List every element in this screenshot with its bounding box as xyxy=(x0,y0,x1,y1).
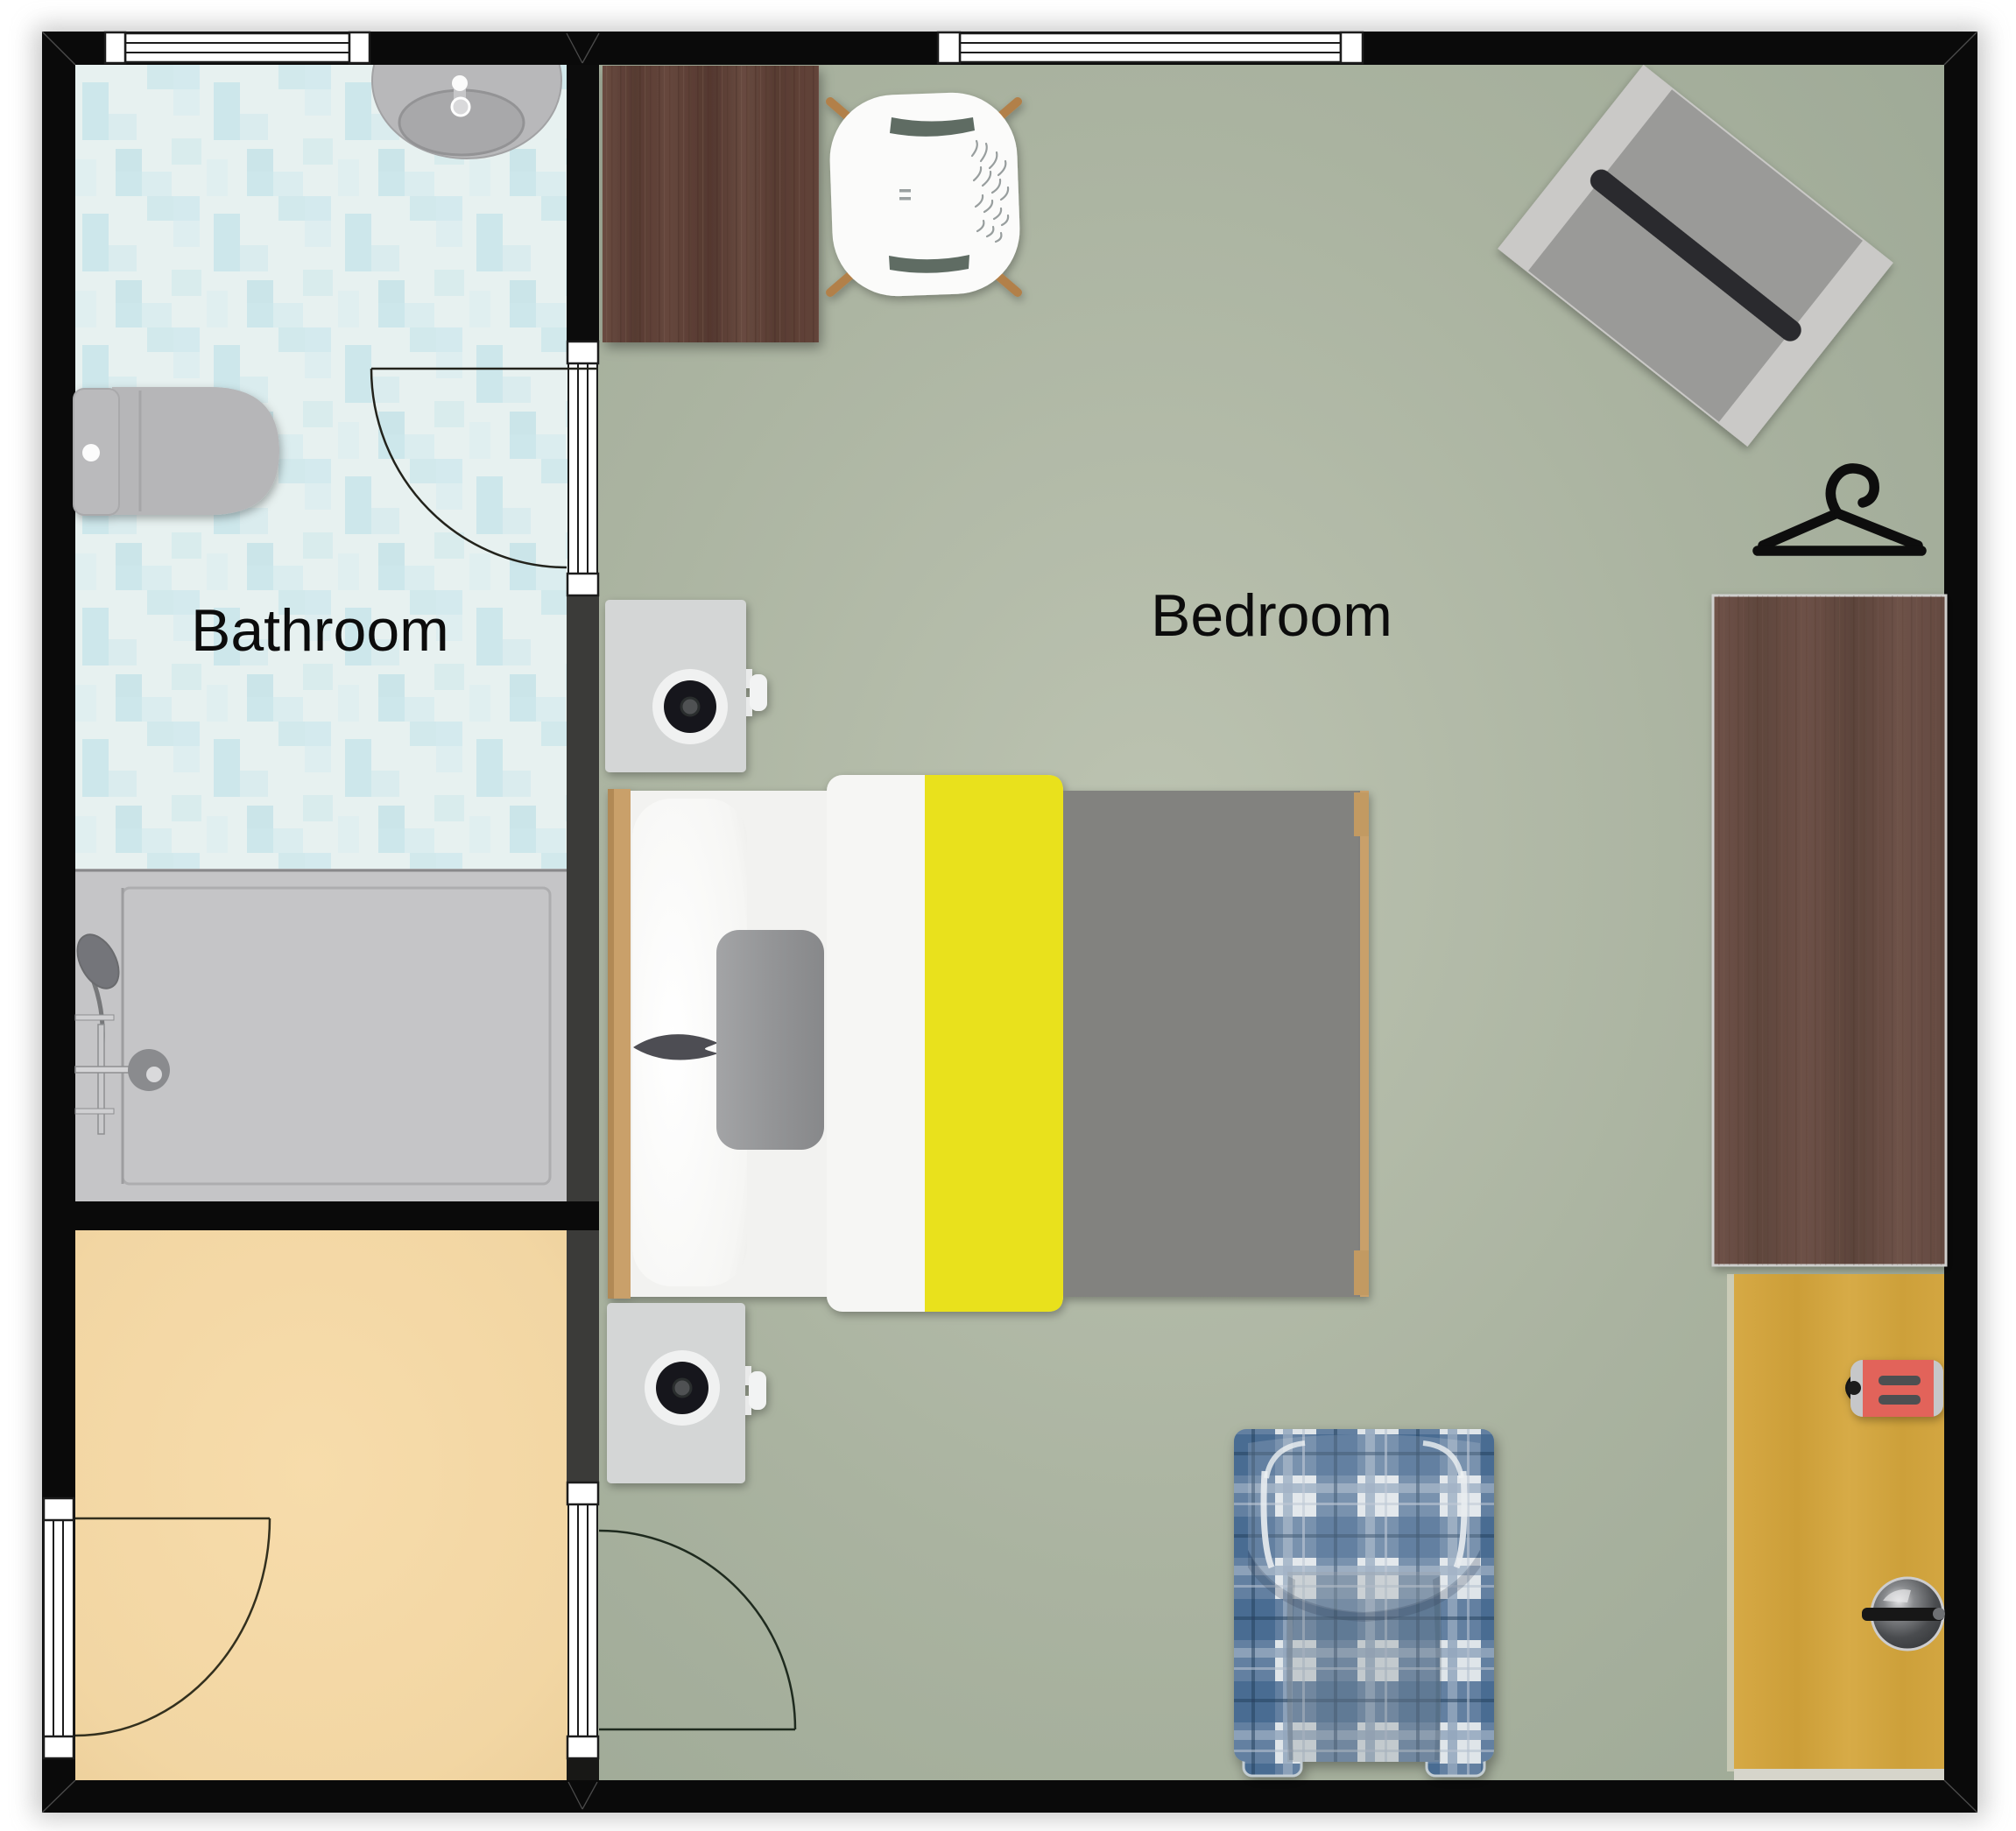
svg-text:Bathroom: Bathroom xyxy=(191,597,449,664)
svg-text:Bedroom: Bedroom xyxy=(1151,582,1392,649)
